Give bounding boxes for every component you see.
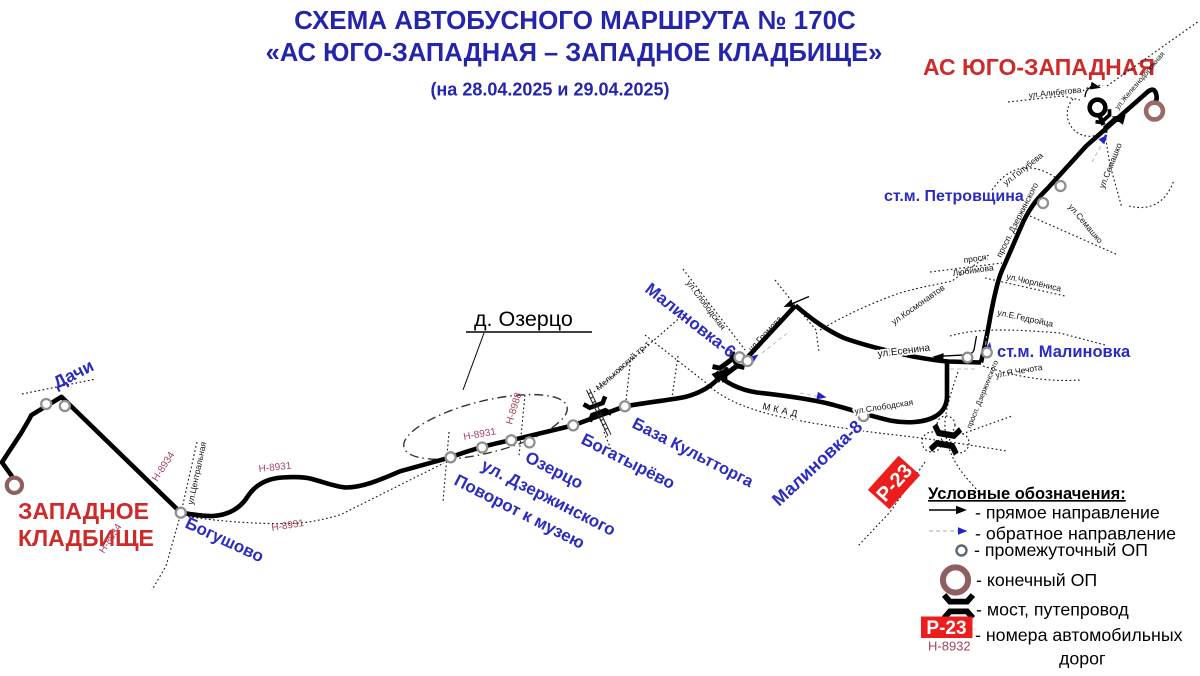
svg-text:- мост, путепровод: - мост, путепровод <box>976 600 1129 620</box>
svg-text:ст.м. Малиновка: ст.м. Малиновка <box>997 343 1131 361</box>
svg-text:- конечный ОП: - конечный ОП <box>976 570 1097 590</box>
svg-text:КЛАДБИЩЕ: КЛАДБИЩЕ <box>18 525 154 551</box>
svg-text:дорог: дорог <box>1059 649 1106 669</box>
svg-text:- прямое направление: - прямое направление <box>975 503 1160 523</box>
svg-text:ст.м. Петровщина: ст.м. Петровщина <box>884 188 1024 205</box>
svg-text:Н-8932: Н-8932 <box>928 639 971 654</box>
svg-text:- промежуточный ОП: - промежуточный ОП <box>974 540 1148 560</box>
svg-text:(на 28.04.2025 и 29.04.2025): (на 28.04.2025 и 29.04.2025) <box>430 80 669 100</box>
svg-text:СХЕМА АВТОБУСНОГО МАРШРУТА № 1: СХЕМА АВТОБУСНОГО МАРШРУТА № 170С <box>294 5 856 35</box>
svg-text:АС ЮГО-ЗАПАДНАЯ: АС ЮГО-ЗАПАДНАЯ <box>923 54 1155 80</box>
svg-text:д. Озерцо: д. Озерцо <box>474 307 573 331</box>
svg-text:ЗАПАДНОЕ: ЗАПАДНОЕ <box>18 498 149 524</box>
svg-text:- номера автомобильных: - номера автомобильных <box>975 625 1183 645</box>
svg-text:Условные обозначения:: Условные обозначения: <box>928 485 1126 503</box>
svg-text:Р-23: Р-23 <box>926 618 966 639</box>
svg-text:«АС ЮГО-ЗАПАДНАЯ – ЗАПАДНОЕ КЛ: «АС ЮГО-ЗАПАДНАЯ – ЗАПАДНОЕ КЛАДБИЩЕ» <box>266 39 883 67</box>
